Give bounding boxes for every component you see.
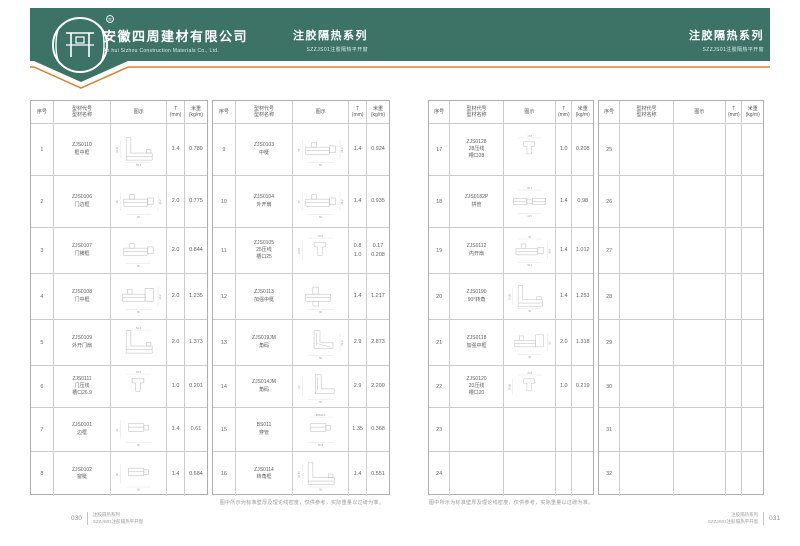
profile-section-drawing: 50.856.4 — [112, 125, 165, 174]
col-header-line: 序号 — [219, 109, 229, 115]
profile-name: 角码 — [259, 343, 269, 350]
row-number: 30 — [599, 365, 619, 407]
dimension-label: 50.6 — [318, 443, 324, 447]
table-row: 9ZJS0103中梃565626.21.40.924 — [213, 123, 389, 175]
profile-section-drawing: 5050 — [505, 321, 554, 364]
table-row: 7ZJS0101边框43501.40.61 — [31, 407, 207, 451]
profile-name: 门边框 — [74, 202, 89, 209]
table-row: 19ZJS0112内开扇5066.165.51.41.012 — [429, 227, 593, 273]
footer-right: 注胶隔热系列 SZZJS01注胶隔热平开窗 031 — [708, 512, 780, 526]
table-row: 2ZJS0106门边框265040.22.00.775 — [31, 175, 207, 227]
dimension-label: 41.5 — [527, 215, 532, 218]
weight-value: 2.209 — [366, 365, 389, 407]
col-header-diagram: 图示 — [503, 101, 555, 123]
footer-left: 030 注胶隔热系列 SZZJS01注胶隔热平开窗 — [71, 512, 143, 526]
profile-name: 边框 — [77, 430, 87, 437]
col-header-line: 图示 — [694, 109, 704, 115]
series-title: 注胶隔热系列 — [689, 27, 764, 43]
profile-model-cell — [449, 451, 502, 496]
profile-name-extra: 槽口25 — [256, 254, 272, 261]
col-header-line: 图示 — [524, 109, 534, 115]
profile-section-drawing: 555626.2 — [294, 177, 347, 226]
row-number: 16 — [213, 451, 235, 496]
thickness-value: 1.0 — [166, 365, 184, 407]
col-header-model: 型材代号型材名称 — [53, 101, 110, 123]
profile-code: ZJS0106 — [72, 194, 92, 201]
profile-model-cell: ZJS0111门压线槽口26.9 — [53, 365, 110, 407]
series-subtitle: SZZJS01注胶隔热平开窗 — [293, 46, 368, 53]
col-header-weight: 米重(kg/m) — [571, 101, 592, 123]
thickness-value: 2.0 — [555, 319, 571, 365]
footer-series-line2: SZZJS01注胶隔热平开窗 — [708, 519, 758, 526]
profile-section-drawing: 5066.165.5 — [505, 229, 554, 272]
profile-code: ZJS0190 — [467, 289, 487, 296]
dimension-label: 52.4 — [340, 340, 344, 346]
dimension-label: 50 — [137, 443, 140, 447]
profile-name-extra: 槽口26.9 — [72, 390, 92, 397]
profile-name: 角码 — [259, 387, 269, 394]
dimension-label: 56 — [319, 163, 322, 167]
profile-code: ZJS0113 — [254, 289, 274, 296]
weight-value — [741, 319, 762, 365]
row-number: 9 — [213, 123, 235, 175]
row-number: 10 — [213, 175, 235, 227]
weight-value: 2.873 — [366, 319, 389, 365]
col-header-line: 型材名称 — [467, 112, 487, 118]
weight-value: 0.17 0.208 — [366, 227, 389, 273]
row-number: 24 — [429, 451, 449, 496]
page-number: 031 — [769, 515, 780, 522]
profile-code: ZJS019JM — [252, 335, 276, 342]
dimension-label: 56 — [319, 215, 322, 219]
weight-value: 0.844 — [184, 227, 207, 273]
profile-model-cell: ZJS010525压线槽口25 — [235, 227, 292, 273]
table-row: 30 — [599, 365, 763, 407]
thickness-value: 1.4 — [555, 273, 571, 319]
footer-series-text: 注胶隔热系列 SZZJS01注胶隔热平开窗 — [93, 512, 143, 526]
profile-model-cell: ZJS0110框中框 — [53, 123, 110, 175]
profile-table: 序号型材代号型材名称图示T(mm)米重(kg/m)9ZJS0103中梃56562… — [212, 100, 390, 495]
thickness-value: 1.4 — [555, 227, 571, 273]
table-row: 11ZJS010525压线槽口2520.623.050.8 1.00.17 0.… — [213, 227, 389, 273]
thickness-value: 1.4 — [166, 451, 184, 496]
profile-table: 序号型材代号型材名称图示T(mm)米重(kg/m)1ZJS0110框中框50.8… — [30, 100, 208, 495]
profile-code: ZJS0120 — [467, 376, 487, 383]
table-row: 15BS011穿管BS011A50.61.350.368 — [213, 407, 389, 451]
col-header-model: 型材代号型材名称 — [235, 101, 292, 123]
col-header-line: (mm) — [558, 112, 570, 118]
dimension-label: 50 — [319, 310, 322, 314]
right-page-tables: 序号型材代号型材名称图示T(mm)米重(kg/m)17ZJS012828压线槽口… — [428, 100, 764, 495]
dimension-label: 20.6 — [318, 234, 324, 238]
weight-value — [741, 365, 762, 407]
weight-value: 1.253 — [571, 273, 592, 319]
dimension-label: 23.05 — [297, 247, 301, 254]
profile-diagram-cell — [503, 451, 555, 496]
dimension-label: 26.2 — [340, 147, 344, 153]
table-row: 8ZJS0102窗梃40501.40.684 — [31, 451, 207, 496]
profile-section-drawing: 6060 — [294, 367, 347, 406]
table-row: 6ZJS0111门压线槽口26.920.61.00.201 — [31, 365, 207, 407]
dimension-label: 20.8 — [527, 372, 532, 375]
col-header-no: 序号 — [31, 101, 53, 123]
row-number: 4 — [31, 273, 53, 319]
profile-model-cell — [619, 123, 672, 175]
thickness-value — [725, 227, 741, 273]
dimension-label: 40 — [115, 473, 119, 476]
profile-model-cell: ZJS0102窗梃 — [53, 451, 110, 496]
profile-code: ZJS0118 — [467, 335, 487, 342]
dimension-label: 50 — [528, 356, 531, 359]
profile-diagram-cell: 265040.2 — [110, 175, 166, 227]
profile-model-cell: ZJS0106门边框 — [53, 175, 110, 227]
dimension-label: 50 — [548, 341, 551, 344]
dimension-label: 50 — [137, 488, 140, 492]
profile-model-cell — [619, 451, 672, 496]
weight-value: 0.924 — [366, 123, 389, 175]
row-number: 12 — [213, 273, 235, 319]
weight-value — [571, 407, 592, 451]
accent-rule — [30, 67, 770, 88]
weight-value: 1.373 — [184, 319, 207, 365]
profile-name: 外开扇 — [256, 202, 271, 209]
row-number: 23 — [429, 407, 449, 451]
profile-diagram-cell — [503, 407, 555, 451]
dimension-label: 66.1 — [527, 264, 532, 267]
col-header-line: 图示 — [316, 109, 326, 115]
thickness-value: 2.0 — [166, 227, 184, 273]
profile-diagram-cell — [673, 365, 725, 407]
weight-value: 0.201 — [184, 365, 207, 407]
profile-model-cell — [619, 319, 672, 365]
thickness-value: 1.4 — [166, 123, 184, 175]
row-number: 26 — [599, 175, 619, 227]
series-title-right: 注胶隔热系列 SZZJS01注胶隔热平开窗 — [689, 27, 764, 53]
profile-diagram-cell: 4050 — [110, 451, 166, 496]
col-header-weight: 米重(kg/m) — [184, 101, 207, 123]
table-row: 21ZJS0118加强中框50502.01.318 — [429, 319, 593, 365]
thickness-value — [555, 407, 571, 451]
col-header-line: (kg/m) — [189, 112, 203, 118]
profile-name: 90°转角 — [468, 297, 486, 304]
profile-section-drawing: 4050 — [112, 453, 165, 495]
profile-model-cell: ZJS012020压线槽口20 — [449, 365, 502, 407]
col-header-line: (kg/m) — [576, 112, 590, 118]
profile-diagram-cell — [673, 227, 725, 273]
profile-diagram-cell: 6052.4 — [292, 319, 348, 365]
weight-value: 0.208 — [571, 123, 592, 175]
thickness-value — [725, 319, 741, 365]
profile-name: 中梃 — [259, 150, 269, 157]
row-number: 7 — [31, 407, 53, 451]
col-header-thickness: T(mm) — [725, 101, 741, 123]
dimension-label: 65.5 — [548, 248, 551, 253]
weight-value: 1.235 — [184, 273, 207, 319]
profile-diagram-cell — [673, 407, 725, 451]
col-header-line: (kg/m) — [371, 112, 385, 118]
row-number: 32 — [599, 451, 619, 496]
thickness-value: 2.9 — [348, 319, 366, 365]
weight-value: 0.219 — [571, 365, 592, 407]
thickness-value: 1.4 — [348, 273, 366, 319]
thickness-value — [725, 175, 741, 227]
profile-section-drawing: 62.4 — [112, 321, 165, 364]
profile-name: 门中框 — [74, 297, 89, 304]
col-header-no: 序号 — [599, 101, 619, 123]
footer-series-line1: 注胶隔热系列 — [708, 512, 758, 519]
table-row: 3ZJS0107门横框502.00.844 — [31, 227, 207, 273]
profile-diagram-cell: 4350 — [110, 407, 166, 451]
col-header-line: 序号 — [604, 109, 614, 115]
row-number: 18 — [429, 175, 449, 227]
col-header-line: (mm) — [170, 112, 182, 118]
profile-code: ZJS014JM — [252, 379, 276, 386]
profile-model-cell — [619, 175, 672, 227]
col-header-line: 型材名称 — [637, 112, 657, 118]
table-row: 1ZJS0110框中框50.856.41.40.789 — [31, 123, 207, 175]
dimension-label: 55 — [297, 200, 301, 203]
row-number: 31 — [599, 407, 619, 451]
weight-value: 0.775 — [184, 175, 207, 227]
col-header-line: 图示 — [134, 109, 144, 115]
profile-section-drawing: 265040.2 — [112, 177, 165, 226]
thickness-value: 2.9 — [348, 365, 366, 407]
col-header-line: (kg/m) — [746, 112, 760, 118]
profile-code: ZJS0103 — [254, 142, 274, 149]
table-row: 13ZJS019JM角码6052.42.92.873 — [213, 319, 389, 365]
profile-name: 框中框 — [74, 150, 89, 157]
weight-value: 0.98 — [571, 175, 592, 227]
profile-section-drawing: 6052.4 — [294, 321, 347, 364]
profile-model-cell: ZJS0104外开扇 — [235, 175, 292, 227]
weight-value: 0.684 — [184, 451, 207, 496]
row-number: 29 — [599, 319, 619, 365]
row-number: 27 — [599, 227, 619, 273]
thickness-value: 2.0 — [166, 319, 184, 365]
profile-name-extra: 槽口20 — [469, 390, 485, 397]
profile-section-drawing: 5040.2 — [112, 275, 165, 318]
profile-section-drawing: 73.9850 — [505, 275, 554, 318]
table-header-row: 序号型材代号型材名称图示T(mm)米重(kg/m) — [599, 101, 763, 123]
profile-diagram-cell: 50 — [110, 227, 166, 273]
profile-name: 穿管 — [259, 430, 269, 437]
thickness-value: 1.4 — [348, 451, 366, 496]
profile-model-cell: ZJS0113加强中梃 — [235, 273, 292, 319]
profile-diagram-cell — [673, 123, 725, 175]
table-row: 31 — [599, 407, 763, 451]
company-name-en: An hui Sizhou Construction Materials Co.… — [103, 48, 248, 54]
profile-code: ZJS0114 — [254, 467, 274, 474]
thickness-value: 2.0 — [166, 175, 184, 227]
dimension-label: 50 — [319, 488, 322, 492]
profile-name: 加强中框 — [467, 343, 487, 350]
dimension-label: 56.4 — [136, 163, 142, 167]
profile-name: 内开扇 — [469, 251, 484, 258]
thickness-value — [725, 451, 741, 496]
table-row: 17ZJS012828压线槽口2817.81.00.208 — [429, 123, 593, 175]
col-header-line: 型材名称 — [254, 112, 274, 118]
profile-code: ZJS0182P — [465, 194, 488, 201]
weight-value: 0.368 — [366, 407, 389, 451]
table-row: 5ZJS0109外开门扇62.42.01.373 — [31, 319, 207, 365]
row-number: 5 — [31, 319, 53, 365]
left-page-tables: 序号型材代号型材名称图示T(mm)米重(kg/m)1ZJS0110框中框50.8… — [30, 100, 390, 495]
col-header-line: (mm) — [728, 112, 740, 118]
profile-diagram-cell: 50.856.4 — [110, 123, 166, 175]
dimension-label: BS011A — [316, 413, 326, 417]
row-number: 11 — [213, 227, 235, 273]
profile-diagram-cell: 17.8 — [503, 123, 555, 175]
weight-value: 0.789 — [184, 123, 207, 175]
table-row: 27 — [599, 227, 763, 273]
profile-diagram-cell: 565626.2 — [292, 123, 348, 175]
row-number: 20 — [429, 273, 449, 319]
table-row: 24 — [429, 451, 593, 496]
col-header-diagram: 图示 — [673, 101, 725, 123]
profile-section-drawing: 50 — [294, 275, 347, 318]
profile-section-drawing: 82.441.5 — [505, 177, 554, 226]
profile-model-cell: ZJS0182P拼管 — [449, 175, 502, 227]
series-title-left: 注胶隔热系列 SZZJS01注胶隔热平开窗 — [293, 27, 368, 53]
dimension-label: 44.85 — [297, 471, 301, 478]
company-name: 安徽四周建材有限公司 — [103, 26, 248, 45]
dimension-label: 50 — [528, 310, 531, 313]
profile-code: ZJS0101 — [72, 422, 92, 429]
thickness-value — [555, 451, 571, 496]
table-row: 18ZJS0182P拼管82.441.51.40.98 — [429, 175, 593, 227]
dimension-label: 20.6 — [136, 370, 142, 374]
profile-section-drawing: BS011A50.6 — [294, 409, 347, 450]
profile-diagram-cell — [673, 273, 725, 319]
profile-code: ZJS0107 — [72, 243, 92, 250]
profile-model-cell: BS011穿管 — [235, 407, 292, 451]
profile-model-cell: ZJS0114转角框 — [235, 451, 292, 496]
profile-section-drawing: 20.6 — [112, 367, 165, 406]
dimension-label: 60 — [319, 400, 322, 404]
thickness-value — [725, 273, 741, 319]
profile-model-cell — [619, 273, 672, 319]
profile-model-cell — [449, 407, 502, 451]
col-header-line: (mm) — [352, 112, 364, 118]
row-number: 15 — [213, 407, 235, 451]
profile-code: BS011 — [257, 422, 272, 429]
dimension-label: 40.2 — [158, 199, 162, 205]
dimension-label: 25.86 — [508, 383, 511, 390]
row-number: 22 — [429, 365, 449, 407]
row-number: 3 — [31, 227, 53, 273]
table-row: 32 — [599, 451, 763, 496]
thickness-value: 1.4 — [555, 175, 571, 227]
weight-value — [741, 273, 762, 319]
dimension-label: 50.8 — [115, 147, 119, 153]
table-row: 20ZJS019090°转角73.98501.41.253 — [429, 273, 593, 319]
col-header-line: 序号 — [434, 109, 444, 115]
weight-value: 1.217 — [366, 273, 389, 319]
thickness-value: 1.4 — [166, 407, 184, 451]
row-number: 13 — [213, 319, 235, 365]
profile-model-cell: ZJS014JM角码 — [235, 365, 292, 407]
table-row: 29 — [599, 319, 763, 365]
profile-model-cell: ZJS0109外开门扇 — [53, 319, 110, 365]
row-number: 2 — [31, 175, 53, 227]
profile-diagram-cell — [673, 175, 725, 227]
col-header-no: 序号 — [213, 101, 235, 123]
table-row: 28 — [599, 273, 763, 319]
profile-diagram-cell — [673, 319, 725, 365]
weight-value — [741, 451, 762, 496]
row-number: 1 — [31, 123, 53, 175]
dimension-label: 40.2 — [158, 294, 162, 300]
dimension-label: 50 — [137, 310, 140, 314]
profile-name-extra: 槽口28 — [469, 153, 485, 160]
thickness-value: 1.0 — [555, 123, 571, 175]
table-row: 16ZJS0114转角框44.85501.40.551 — [213, 451, 389, 496]
profile-name: 加强中梃 — [254, 297, 274, 304]
profile-name: 窗梃 — [77, 474, 87, 481]
catalog-spread: R 安徽四周建材有限公司 An hui Sizhou Construction … — [0, 0, 800, 546]
col-header-thickness: T(mm) — [166, 101, 184, 123]
profile-table: 序号型材代号型材名称图示T(mm)米重(kg/m)17ZJS012828压线槽口… — [428, 100, 594, 495]
col-header-weight: 米重(kg/m) — [741, 101, 762, 123]
profile-diagram-cell: 6060 — [292, 365, 348, 407]
profile-model-cell: ZJS019090°转角 — [449, 273, 502, 319]
col-header-line: 型材名称 — [72, 112, 92, 118]
profile-model-cell: ZJS0107门横框 — [53, 227, 110, 273]
profile-model-cell — [619, 365, 672, 407]
table-row: 4ZJS0108门中框5040.22.01.235 — [31, 273, 207, 319]
profile-model-cell: ZJS0103中梃 — [235, 123, 292, 175]
profile-diagram-cell: 20.825.86 — [503, 365, 555, 407]
profile-section-drawing: 20.623.05 — [294, 229, 347, 272]
profile-model-cell: ZJS0112内开扇 — [449, 227, 502, 273]
profile-diagram-cell: 62.4 — [110, 319, 166, 365]
row-number: 14 — [213, 365, 235, 407]
profile-table: 序号型材代号型材名称图示T(mm)米重(kg/m)252627282930313… — [598, 100, 764, 495]
profile-diagram-cell: 50 — [292, 273, 348, 319]
disclaimer-note-right: 图中所示为标准壁厚及理论线密度，仅供参考，实际重量以过磅为准。 — [429, 499, 593, 506]
footer-series-line1: 注胶隔热系列 — [93, 512, 143, 519]
dimension-label: 73.98 — [508, 293, 511, 300]
dimension-label: 62.4 — [136, 326, 142, 330]
weight-value: 1.318 — [571, 319, 592, 365]
profile-section-drawing: 44.8550 — [294, 453, 347, 495]
profile-name: 外开门扇 — [72, 343, 92, 350]
profile-model-cell: ZJS019JM角码 — [235, 319, 292, 365]
footer-divider — [87, 512, 88, 525]
weight-value — [741, 123, 762, 175]
series-subtitle: SZZJS01注胶隔热平开窗 — [689, 46, 764, 53]
profile-model-cell — [619, 227, 672, 273]
col-header-model: 型材代号型材名称 — [619, 101, 672, 123]
table-row: 22ZJS012020压线槽口2020.825.861.00.219 — [429, 365, 593, 407]
col-header-thickness: T(mm) — [348, 101, 366, 123]
thickness-value — [725, 365, 741, 407]
row-number: 28 — [599, 273, 619, 319]
row-number: 21 — [429, 319, 449, 365]
profile-diagram-cell: BS011A50.6 — [292, 407, 348, 451]
profile-code: ZJS0112 — [467, 243, 487, 250]
profile-diagram-cell: 5066.165.5 — [503, 227, 555, 273]
col-header-thickness: T(mm) — [555, 101, 571, 123]
profile-diagram-cell: 5040.2 — [110, 273, 166, 319]
profile-model-cell: ZJS0101边框 — [53, 407, 110, 451]
col-header-line: 序号 — [37, 109, 47, 115]
profile-section-drawing: 50 — [112, 229, 165, 272]
thickness-value: 2.0 — [166, 273, 184, 319]
profile-diagram-cell: 5050 — [503, 319, 555, 365]
table-row: 10ZJS0104外开扇555626.21.40.935 — [213, 175, 389, 227]
weight-value — [741, 407, 762, 451]
